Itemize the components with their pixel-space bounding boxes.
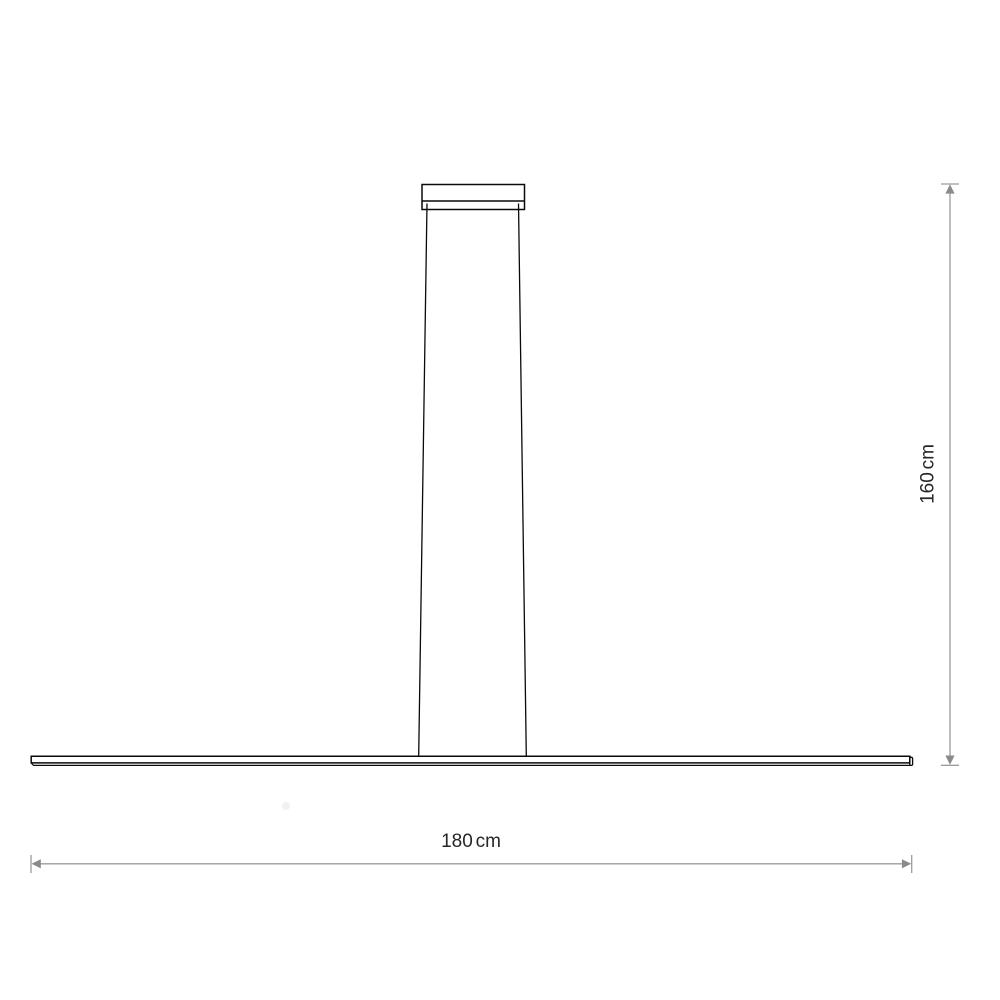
svg-text:160 cm: 160 cm xyxy=(918,444,939,504)
svg-text:180 cm: 180 cm xyxy=(441,831,501,852)
